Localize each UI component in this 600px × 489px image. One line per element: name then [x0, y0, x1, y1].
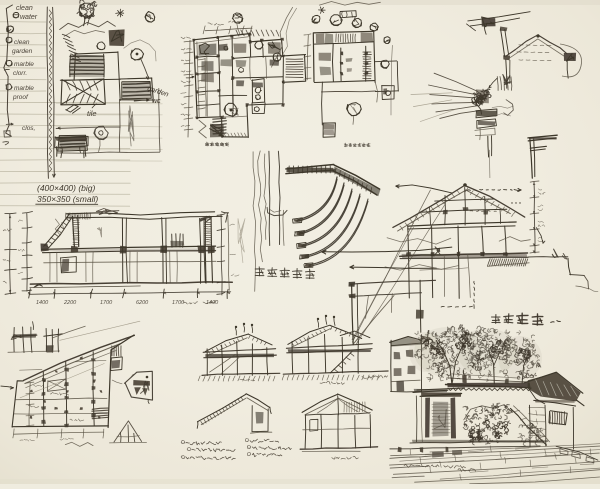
svg-text:clean: clean — [16, 5, 33, 12]
svg-text:marble: marble — [14, 85, 34, 92]
svg-text:wc: wc — [152, 98, 161, 105]
svg-text:clean: clean — [14, 39, 30, 46]
svg-text:garden: garden — [12, 48, 33, 55]
svg-text:clos,: clos, — [22, 125, 36, 132]
svg-text:6200: 6200 — [136, 300, 149, 306]
svg-text:proof: proof — [12, 94, 29, 101]
svg-text:clorr.: clorr. — [13, 70, 27, 77]
svg-text:tile: tile — [87, 109, 97, 118]
svg-text:1700: 1700 — [172, 300, 185, 306]
svg-text:marble: marble — [14, 61, 34, 68]
svg-text:1700: 1700 — [100, 300, 113, 306]
svg-text:350×350 (small): 350×350 (small) — [37, 194, 98, 204]
svg-text:2200: 2200 — [63, 300, 77, 306]
svg-text:water: water — [20, 14, 38, 21]
svg-text:1400: 1400 — [36, 300, 49, 306]
svg-text:(400×400) (big): (400×400) (big) — [37, 183, 96, 193]
